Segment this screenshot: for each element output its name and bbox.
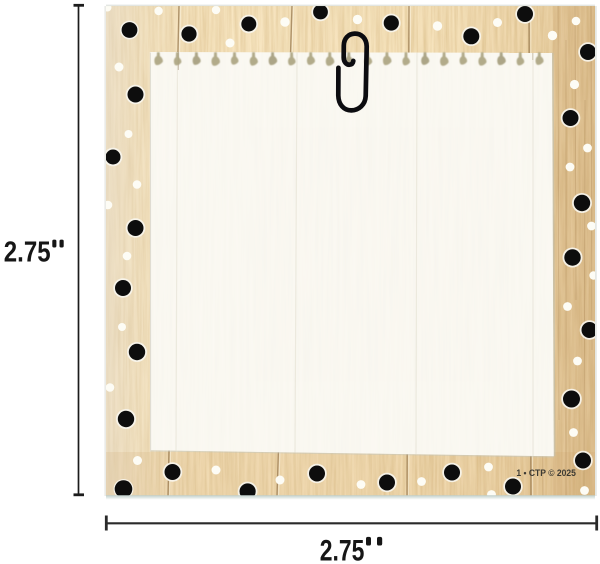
svg-text:2.75: 2.75	[320, 535, 365, 564]
svg-text:1 • CTP © 2025: 1 • CTP © 2025	[516, 468, 576, 478]
svg-text:2.75: 2.75	[4, 236, 51, 268]
